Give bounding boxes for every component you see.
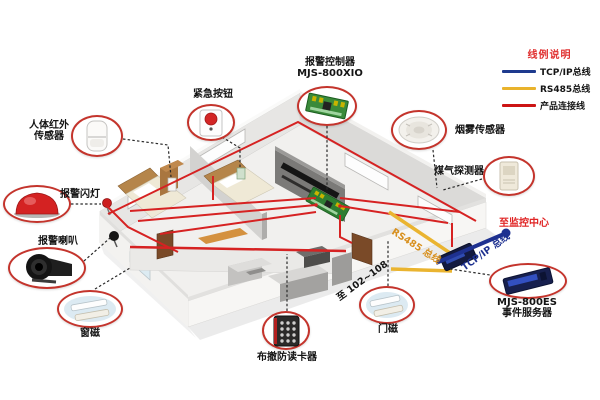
event-server-icon bbox=[495, 267, 561, 295]
event-server-callout bbox=[489, 263, 567, 299]
emergency-button-label: 紧急按钮 bbox=[184, 89, 242, 100]
card-reader-callout bbox=[262, 311, 310, 350]
alarm-siren-icon bbox=[14, 251, 80, 285]
alarm-controller-label: 报警控制器 MJS-800XIO bbox=[285, 57, 375, 79]
legend-title: 线例说明 bbox=[502, 46, 597, 61]
tcpip-line-swatch bbox=[502, 70, 536, 74]
alarm-controller-callout bbox=[297, 86, 357, 126]
alarm-siren-label: 报警喇叭 bbox=[33, 236, 83, 247]
smoke-sensor-callout bbox=[391, 110, 447, 150]
alarm-siren-callout bbox=[8, 247, 86, 289]
pir-sensor-label: 人体红外 传感器 bbox=[24, 120, 74, 142]
window-contact-callout bbox=[57, 290, 123, 328]
gas-detector-icon bbox=[489, 160, 529, 192]
legend-item-product: 产品连接线 bbox=[502, 99, 597, 112]
smoke-sensor-icon bbox=[396, 114, 442, 146]
siren-device bbox=[109, 231, 119, 241]
gas-detector-label: 煤气探测器 bbox=[428, 166, 490, 177]
emergency-button-icon bbox=[192, 108, 230, 138]
card-reader-icon bbox=[267, 315, 305, 347]
legend: 线例说明 TCP/IP总线 RS485总线 产品连接线 bbox=[502, 46, 597, 112]
legend-item-rs485: RS485总线 bbox=[502, 82, 597, 95]
window-contact-icon bbox=[62, 294, 118, 324]
card-reader-label: 布撤防读卡器 bbox=[244, 352, 330, 363]
door-contact-label: 门磁 bbox=[366, 324, 410, 335]
door-contact-callout bbox=[359, 286, 415, 324]
alarm-controller-icon bbox=[303, 92, 351, 120]
to-monitor-center-label: 至监控中心 bbox=[482, 218, 566, 229]
window-contact-label: 窗磁 bbox=[68, 328, 112, 339]
product-line-swatch bbox=[502, 104, 536, 108]
legend-item-tcpip: TCP/IP总线 bbox=[502, 65, 597, 78]
emergency-button-callout bbox=[187, 104, 235, 141]
door-contact-icon bbox=[364, 290, 410, 320]
smoke-sensor-label: 烟雾传感器 bbox=[449, 125, 511, 136]
event-server-label: MJS-800ES 事件服务器 bbox=[484, 297, 570, 319]
rs485-line-swatch bbox=[502, 87, 536, 91]
gas-detector-callout bbox=[483, 156, 535, 196]
security-system-diagram: 线例说明 TCP/IP总线 RS485总线 产品连接线 bbox=[0, 0, 600, 400]
alarm-strobe-label: 报警闪灯 bbox=[55, 189, 105, 200]
emergency-device bbox=[237, 168, 245, 179]
pir-sensor-icon bbox=[76, 119, 118, 153]
pir-sensor-callout bbox=[71, 115, 123, 157]
